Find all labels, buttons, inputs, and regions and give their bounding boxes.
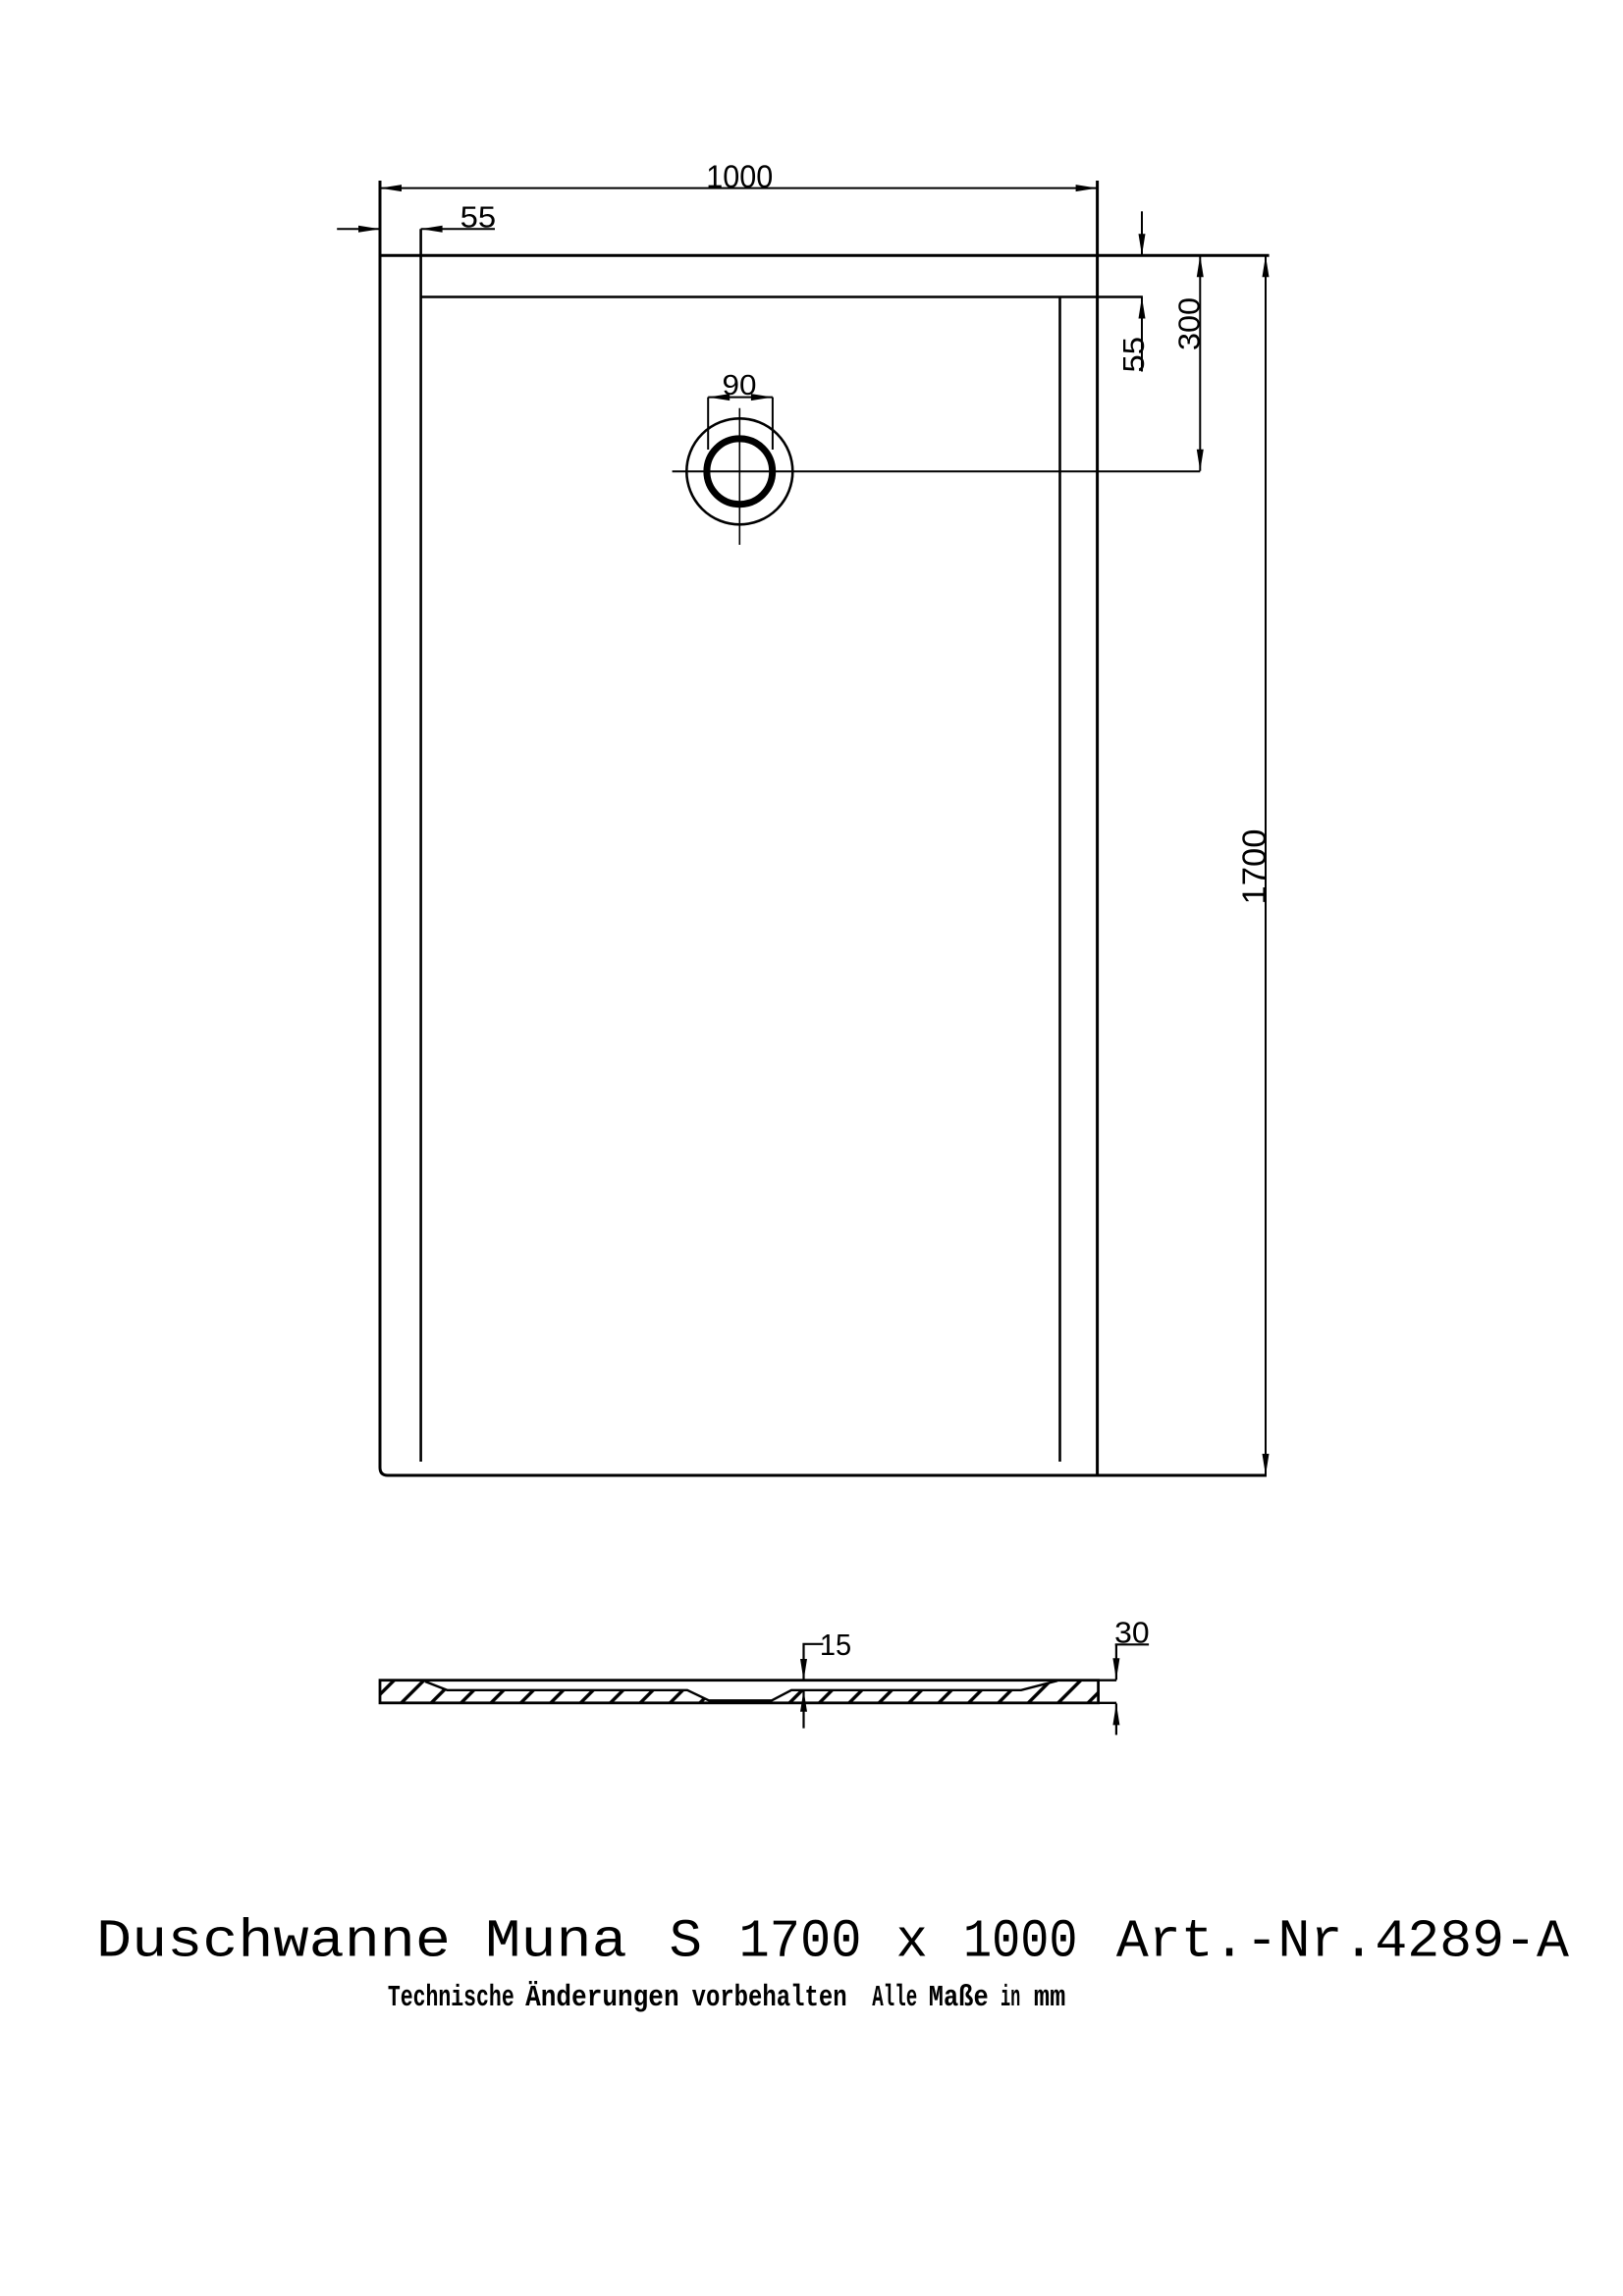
svg-text:1000: 1000	[963, 1911, 1078, 1973]
svg-text:Technische: Technische	[388, 1981, 514, 2015]
svg-text:Muna: Muna	[485, 1911, 626, 1973]
svg-text:1000: 1000	[706, 159, 773, 194]
svg-text:mm: mm	[1034, 1981, 1065, 2015]
svg-text:Duschwanne: Duschwanne	[96, 1911, 451, 1973]
svg-text:Alle: Alle	[872, 1981, 917, 2015]
svg-text:90: 90	[723, 370, 757, 401]
svg-text:Maße: Maße	[929, 1981, 989, 2015]
svg-text:Art.-Nr.4289-A: Art.-Nr.4289-A	[1116, 1911, 1569, 1973]
svg-text:Änderungen: Änderungen	[525, 1980, 679, 2015]
svg-text:15: 15	[820, 1628, 851, 1662]
svg-text:vorbehalten: vorbehalten	[692, 1981, 847, 2015]
svg-text:x: x	[896, 1911, 929, 1973]
svg-text:1700: 1700	[739, 1911, 862, 1973]
svg-text:in: in	[1001, 1981, 1020, 2015]
svg-text:S: S	[670, 1911, 703, 1973]
svg-text:55: 55	[460, 200, 497, 235]
svg-text:1700: 1700	[1236, 829, 1273, 905]
svg-text:300: 300	[1172, 297, 1207, 350]
svg-text:55: 55	[1116, 337, 1151, 373]
